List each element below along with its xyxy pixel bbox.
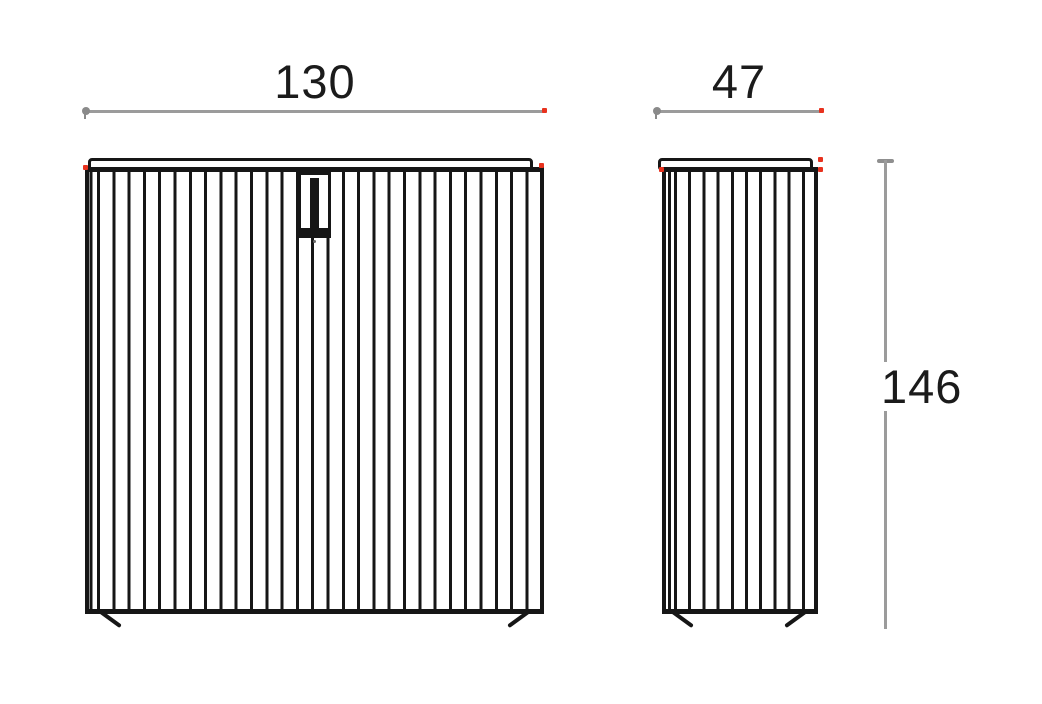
drawing-canvas: 130 47 146 [0,0,1042,704]
side-top-right-lower-marker [818,167,823,172]
height-dimension-label: 146 [878,362,965,411]
front-top-right-marker [539,163,544,168]
front-top-left-marker [83,165,88,170]
door-handle-base [301,228,328,235]
depth-dimension-start-pin [653,107,661,115]
door-handle-grip [310,178,319,229]
depth-dimension-label: 47 [679,57,799,106]
width-dimension-start-pin [82,107,90,115]
door-handle-pivot [313,240,316,243]
door-handle [298,172,331,238]
width-dimension-label: 130 [255,57,375,106]
depth-dimension-end-marker [819,108,824,113]
side-top-right-upper-marker [818,157,823,162]
side-body [662,167,818,614]
side-slats [666,172,814,609]
side-top-left-marker [659,167,664,172]
width-dimension-line [85,110,546,113]
width-dimension-end-marker [542,108,547,113]
depth-dimension-line [656,110,823,113]
